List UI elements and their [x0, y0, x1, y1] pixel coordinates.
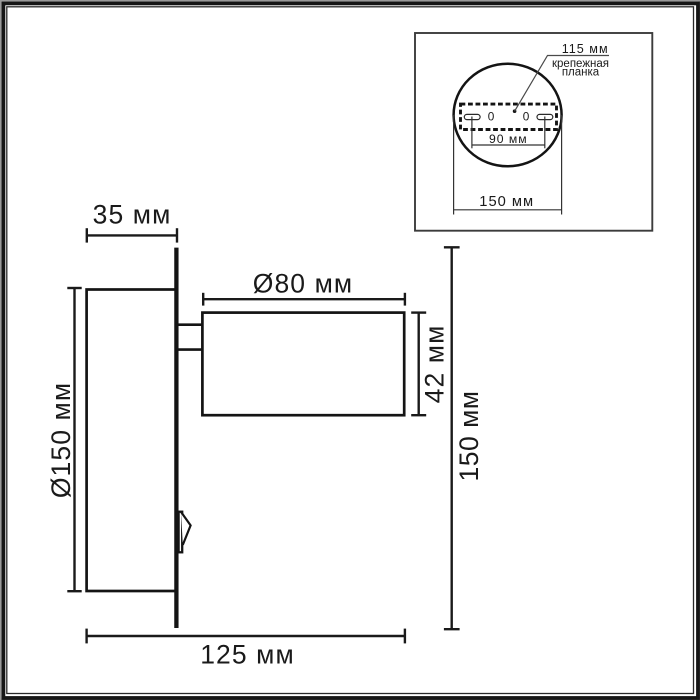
svg-text:90 мм: 90 мм [489, 132, 528, 146]
svg-text:115 мм: 115 мм [562, 42, 609, 56]
svg-text:Ø150 мм: Ø150 мм [46, 382, 76, 498]
svg-text:Ø80 мм: Ø80 мм [253, 268, 354, 298]
svg-text:150 мм: 150 мм [454, 390, 484, 481]
svg-text:планка: планка [562, 66, 600, 78]
svg-text:150 мм: 150 мм [479, 194, 534, 210]
svg-text:0: 0 [488, 109, 495, 123]
svg-text:42 мм: 42 мм [420, 325, 450, 404]
svg-text:35 мм: 35 мм [93, 199, 172, 229]
svg-text:0: 0 [523, 109, 530, 123]
svg-text:125 мм: 125 мм [200, 640, 295, 670]
